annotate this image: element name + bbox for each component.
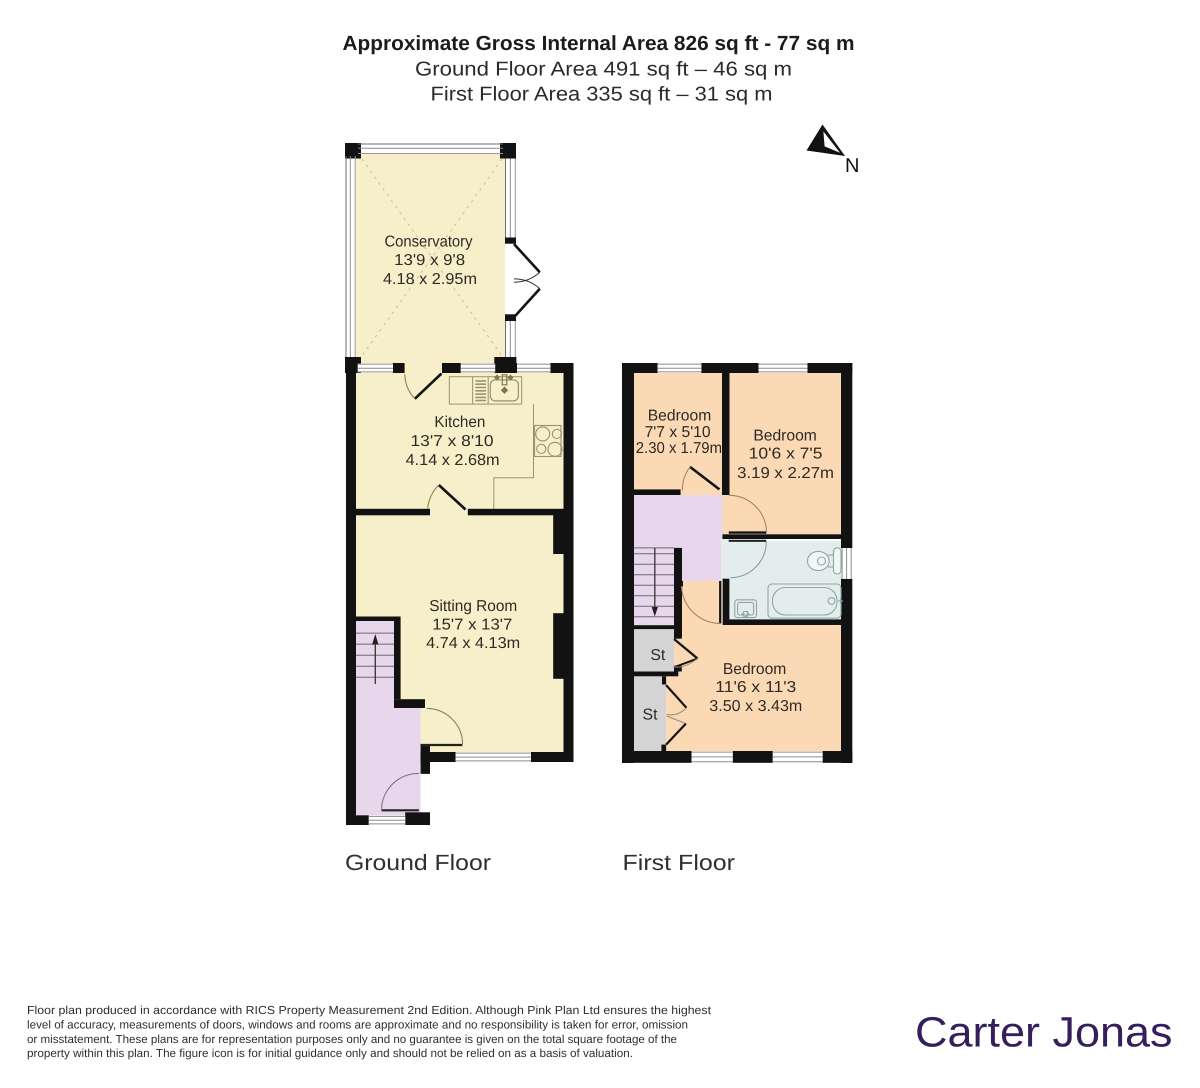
svg-text:13'9 x 9'8: 13'9 x 9'8 [394,252,465,269]
svg-text:Ground Floor Area 491 sq ft –: Ground Floor Area 491 sq ft – 46 sq m [415,59,792,81]
svg-text:Sitting Room: Sitting Room [429,598,517,615]
svg-text:Bedroom: Bedroom [753,428,817,445]
svg-text:St: St [650,647,666,664]
svg-text:3.50 x 3.43m: 3.50 x 3.43m [709,698,802,715]
svg-text:Conservatory: Conservatory [385,233,473,250]
svg-text:4.14 x 2.68m: 4.14 x 2.68m [406,452,500,469]
svg-text:15'7 x 13'7: 15'7 x 13'7 [432,616,512,633]
svg-text:Approximate Gross Internal Are: Approximate Gross Internal Area 826 sq f… [343,32,855,55]
svg-text:Floor plan produced in accorda: Floor plan produced in accordance with R… [27,1004,712,1017]
svg-text:property within this plan. The: property within this plan. The figure ic… [27,1047,633,1060]
svg-text:Carter Jonas: Carter Jonas [915,1010,1173,1057]
svg-text:3.19 x 2.27m: 3.19 x 2.27m [737,465,834,482]
svg-text:level of accuracy, measurement: level of accuracy, measurements of doors… [27,1018,688,1031]
svg-text:2.30 x 1.79m: 2.30 x 1.79m [636,440,722,457]
svg-text:13'7 x 8'10: 13'7 x 8'10 [411,433,494,450]
svg-text:Bedroom: Bedroom [723,661,787,678]
svg-text:N: N [845,155,859,177]
svg-text:Kitchen: Kitchen [434,414,485,431]
svg-text:First Floor: First Floor [623,850,736,875]
svg-text:St: St [643,707,659,724]
svg-text:4.18 x 2.95m: 4.18 x 2.95m [383,271,477,288]
svg-text:Bedroom: Bedroom [648,408,712,425]
svg-text:4.74 x 4.13m: 4.74 x 4.13m [426,635,520,652]
svg-text:11'6 x 11'3: 11'6 x 11'3 [715,679,796,696]
svg-text:First Floor Area 335 sq ft – 3: First Floor Area 335 sq ft – 31 sq m [431,84,773,106]
svg-text:10'6 x 7'5: 10'6 x 7'5 [749,445,823,462]
svg-text:Ground Floor: Ground Floor [345,850,491,875]
svg-text:or misstatement. These plans a: or misstatement. These plans are for rep… [27,1033,677,1046]
svg-text:7'7 x 5'10: 7'7 x 5'10 [645,424,711,441]
